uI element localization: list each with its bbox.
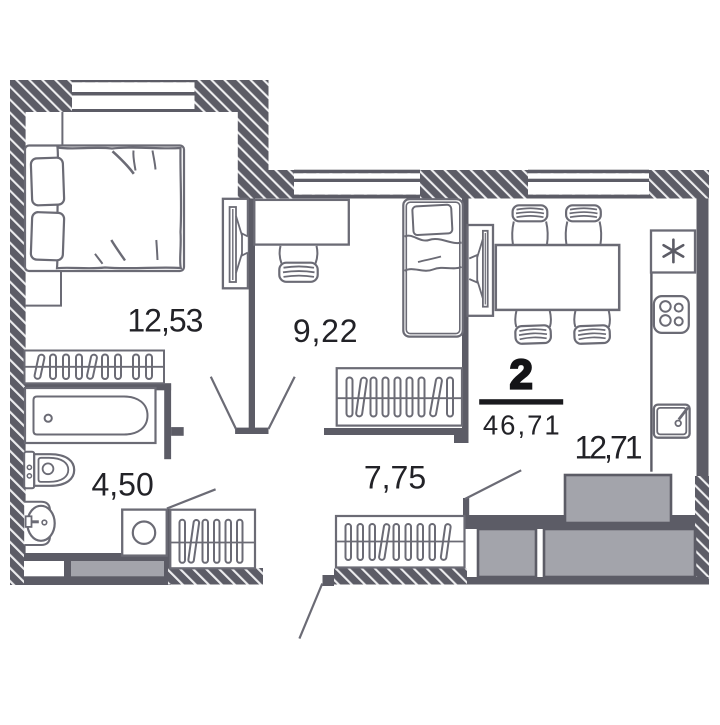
svg-text:12,53: 12,53	[127, 303, 202, 339]
svg-text:9,22: 9,22	[293, 313, 358, 349]
svg-text:4,50: 4,50	[91, 466, 153, 502]
svg-text:7,75: 7,75	[364, 460, 426, 496]
svg-text:46,71: 46,71	[483, 409, 562, 440]
svg-text:2: 2	[510, 351, 533, 398]
svg-text:12,71: 12,71	[574, 430, 641, 466]
